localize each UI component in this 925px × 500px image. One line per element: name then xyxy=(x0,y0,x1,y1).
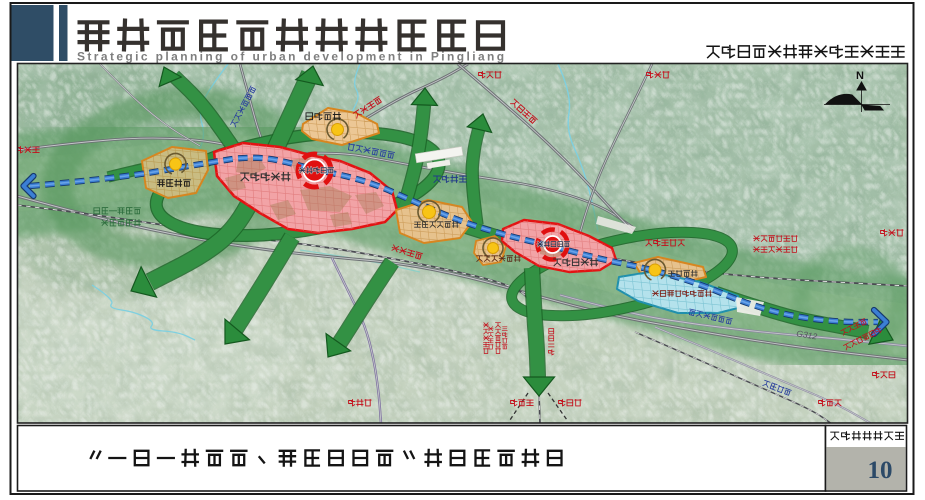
svg-text:10: 10 xyxy=(868,457,893,484)
svg-text:Strategic planning of urban de: Strategic planning of urban development … xyxy=(77,50,507,64)
svg-text:N: N xyxy=(856,70,864,82)
